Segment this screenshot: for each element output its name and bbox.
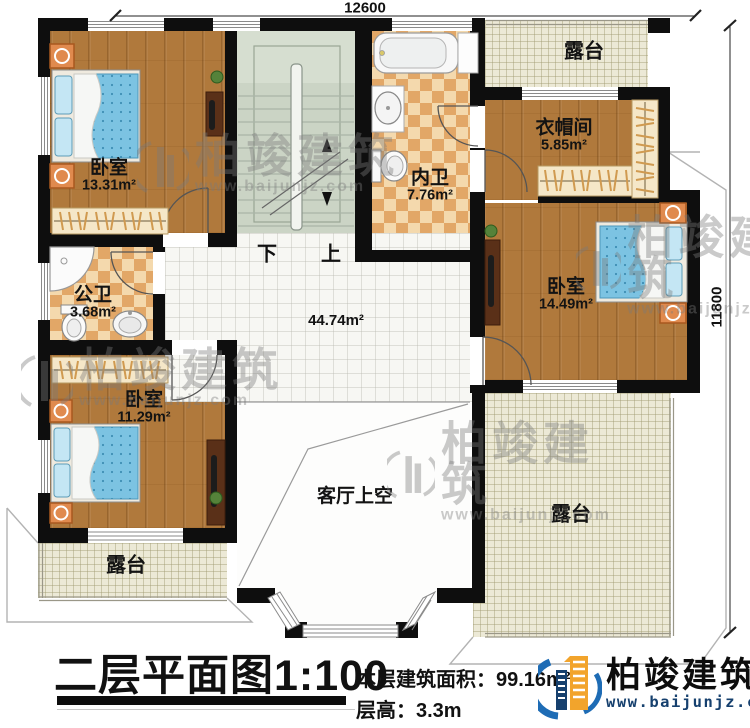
stairwell-floor [237,31,355,235]
terrace-br-label: 露台 [551,505,591,526]
bay-window-floor [255,588,448,640]
bath-inner-label: 内卫7.76m² [407,168,453,203]
cloakroom-label: 衣帽间5.85m² [535,118,592,153]
company-logo: 柏竣建筑 www.baijunjz.com [538,648,750,720]
terrace-top-label: 露台 [564,42,604,63]
stair-up-label: 上 [321,238,341,267]
bath-public-label: 公卫3.68m² [70,285,116,320]
company-logo-icon [538,648,602,720]
terrace-bl-label: 露台 [106,556,146,577]
floor-area-label: 本层建筑面积： [356,669,496,691]
plan-title: 二层平面图1:100 [54,641,389,703]
bedroom-right-label: 卧室14.49m² [539,277,593,312]
title-underline [57,696,346,705]
title-underline-thin [57,709,355,710]
bedroom-tl-label: 卧室13.31m² [82,158,136,193]
stair-down-label: 下 [257,238,277,267]
floor-height-note: 层高：3.3m [356,694,462,723]
company-logo-url: www.baijunjz.com [606,693,750,711]
bath-inner-floor [372,31,478,250]
living-void-label: 客厅上空 [317,487,393,507]
company-logo-text: 柏竣建筑 [606,658,750,693]
hall-area-label: 44.74m² [308,313,364,329]
floor-height-label: 层高： [356,700,416,722]
dimension-top: 12600 [344,0,386,17]
dimension-right: 11800 [709,287,726,328]
bedroom-tl-floor [50,31,225,233]
floorplan-canvas: 卧室13.31m² 内卫7.76m² 露台 衣帽间5.85m² 卧室14.49m… [0,0,750,728]
floor-height-value: 3.3m [416,700,462,722]
bay-window [268,592,435,637]
bedroom-bl-label: 卧室11.29m² [117,390,170,425]
